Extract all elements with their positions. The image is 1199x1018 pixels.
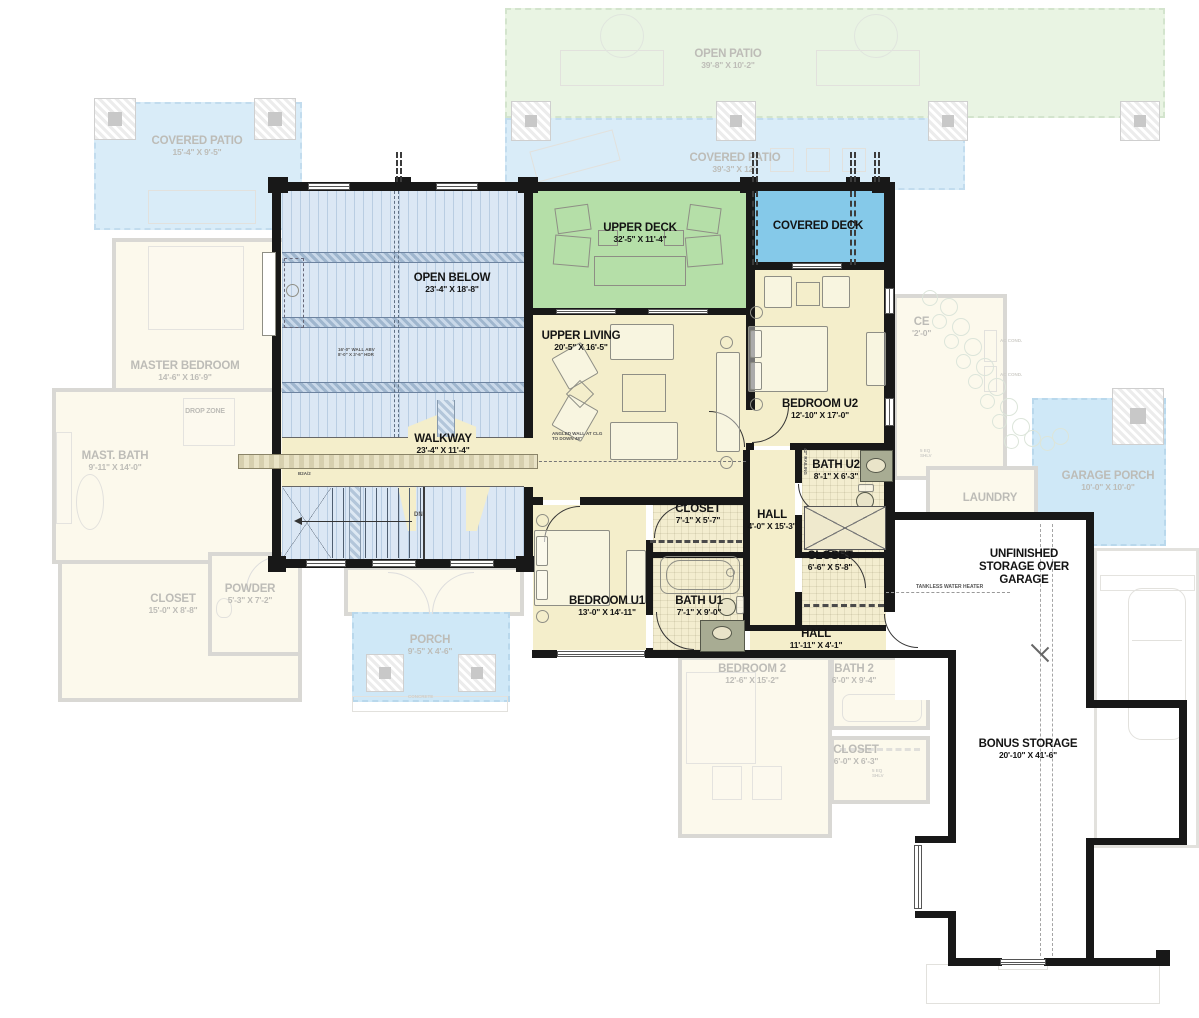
fire-table xyxy=(854,14,898,58)
window xyxy=(436,183,478,190)
open-below-label: OPEN BELOW 23'-4" X 18'-8" xyxy=(414,272,491,294)
faded-furniture xyxy=(712,766,742,800)
shrub xyxy=(976,358,994,376)
wall xyxy=(532,497,543,505)
room-dims: 15'-4" X 9'-5" xyxy=(152,148,243,158)
room-dims: 8'-1" X 6'-3" xyxy=(812,472,860,482)
wall xyxy=(948,655,956,838)
porch-label: PORCH 9'-5" X 4'-6" xyxy=(408,634,452,656)
living-note: ANGLED WALL AT CLG TO DOWN 48" xyxy=(552,431,602,442)
wall xyxy=(646,552,653,615)
sink-fixture xyxy=(712,626,732,640)
faded-outline xyxy=(1132,640,1182,641)
window xyxy=(308,183,350,190)
room-name: POWDER xyxy=(225,583,276,596)
wall xyxy=(646,497,653,505)
room-name: HALL xyxy=(790,628,843,641)
upper-living-label: UPPER LIVING 20'-5" X 16'-5" xyxy=(542,330,621,352)
shrub xyxy=(992,414,1007,429)
shrub xyxy=(1000,398,1018,416)
column xyxy=(942,115,954,127)
upper-deck-label: UPPER DECK 32'-5" X 11'-4" xyxy=(603,222,676,244)
bath-2-label: BATH 2 6'-0" X 9'-4" xyxy=(832,663,876,685)
furniture xyxy=(796,282,820,306)
light-fixture xyxy=(750,398,763,411)
ridge-line xyxy=(394,191,399,437)
walkway-beam xyxy=(238,454,538,469)
room-name: CLOSET xyxy=(807,550,852,563)
room-name: DROP ZONE xyxy=(185,408,225,416)
closet-u1-label: CLOSET 7'-1" X 5'-7" xyxy=(675,503,720,525)
shrub xyxy=(968,374,983,389)
bath-u2-label: BATH U2 8'-1" X 6'-3" xyxy=(812,459,860,481)
room-dims: 39'-3" X 12'- xyxy=(690,165,781,175)
room-name: UPPER DECK xyxy=(603,222,676,235)
room-name: BEDROOM U1 xyxy=(569,595,645,608)
post xyxy=(752,152,758,182)
powder-label: POWDER 5'-3" X 7'-2" xyxy=(225,583,276,605)
faded-outline xyxy=(76,474,104,530)
faded-outline xyxy=(806,148,830,172)
tankless-note: TANKLESS WATER HEATER xyxy=(914,584,985,590)
furniture xyxy=(554,204,591,234)
beam xyxy=(282,317,524,328)
room-name: HALL xyxy=(748,509,797,522)
fire-table xyxy=(600,14,644,58)
furniture xyxy=(685,234,723,267)
shelf-dashes xyxy=(650,540,742,543)
garage-porch-label: GARAGE PORCH 10'-0" X 10'-0" xyxy=(1062,470,1155,492)
room-name: COVERED DECK xyxy=(773,220,863,233)
shrub xyxy=(956,354,971,369)
shrub xyxy=(922,290,938,306)
wall xyxy=(645,650,895,658)
room-name: WALKWAY xyxy=(414,433,472,446)
column xyxy=(1130,408,1146,424)
master-bedroom-label: MASTER BEDROOM 14'-6" X 16'-9" xyxy=(130,360,239,382)
wall xyxy=(795,450,802,483)
shelf-dashes xyxy=(804,604,884,607)
room-floor xyxy=(750,450,795,631)
mast-bath-label: MAST. BATH 9'-11" X 14'-0" xyxy=(82,450,149,472)
room-name: CE xyxy=(912,316,931,329)
wall xyxy=(1179,700,1187,845)
wall xyxy=(948,958,1002,966)
shrub xyxy=(988,378,1006,396)
light-fixture xyxy=(720,336,733,349)
bath-u1-label: BATH U1 7'-1" X 9'-0" xyxy=(675,595,723,617)
walkway-label: WALKWAY 23'-4" X 11'-4" xyxy=(414,433,472,455)
light-fixture xyxy=(750,306,763,319)
shower xyxy=(804,506,886,550)
column xyxy=(1134,115,1146,127)
room-dims: 39'-8" X 10'-2" xyxy=(694,61,761,71)
light-fixture xyxy=(536,610,549,623)
shelf-note-1: 5 EQ SHLV xyxy=(920,448,942,459)
wall xyxy=(423,487,425,559)
window xyxy=(792,263,842,269)
room-name: BATH U1 xyxy=(675,595,723,608)
window xyxy=(372,560,416,567)
room-dims: 12'-6" X 15'-2" xyxy=(718,676,786,686)
wall xyxy=(268,556,286,572)
closet-2-label: CLOSET 6'-0" X 6'-3" xyxy=(833,744,878,766)
room-name: CLOSET xyxy=(833,744,878,757)
room-dims: 7'-1" X 5'-7" xyxy=(675,516,720,526)
stair-arrow xyxy=(302,521,412,523)
faded-outline xyxy=(926,964,1160,1004)
wall xyxy=(1156,950,1170,966)
room-dims: 10'-0" X 10'-0" xyxy=(1062,483,1155,493)
light-fixture xyxy=(720,456,733,469)
window xyxy=(648,309,708,314)
faded-outline xyxy=(1128,588,1186,740)
column xyxy=(108,112,122,126)
wall xyxy=(746,443,754,450)
light-fixture xyxy=(536,514,549,527)
wall xyxy=(1086,700,1187,708)
column xyxy=(379,667,391,679)
furniture xyxy=(610,422,678,460)
wall xyxy=(516,556,534,572)
sink-fixture xyxy=(866,458,886,473)
wall xyxy=(895,650,956,658)
room-dims: 5'-3" X 7'-2" xyxy=(225,596,276,606)
column xyxy=(730,115,742,127)
room-dims: 11'-11" X 4'-1" xyxy=(790,641,843,651)
room-dims: 13'-0" X 14'-11" xyxy=(569,608,645,618)
faded-furniture xyxy=(686,672,756,764)
bedroom-2-label: BEDROOM 2 12'-6" X 15'-2" xyxy=(718,663,786,685)
window xyxy=(450,560,494,567)
hall-lower-label: HALL 11'-11" X 4'-1" xyxy=(790,628,843,650)
room-dims: 9'-5" X 4'-6" xyxy=(408,647,452,657)
room-dims: 15'-0" X 8'-8" xyxy=(149,606,198,616)
drop-zone-label: DROP ZONE xyxy=(185,408,225,416)
room-name: BATH 2 xyxy=(832,663,876,676)
shrub xyxy=(980,394,995,409)
room-name: BEDROOM 2 xyxy=(718,663,786,676)
light-fixture xyxy=(726,568,735,577)
room-name: OPEN BELOW xyxy=(414,272,491,285)
ac-note-2: AC COND. xyxy=(1000,372,1022,377)
room-dims: 20'-10" X 41'-6" xyxy=(979,751,1078,761)
wall xyxy=(580,497,746,505)
open-below-note: 16'-0" WALL ABV 8'-0" X 3'-6" HDR xyxy=(338,347,375,358)
furniture xyxy=(858,484,874,492)
dashed-line xyxy=(534,461,746,462)
covered-patio-left-label: COVERED PATIO 15'-4" X 9'-5" xyxy=(152,135,243,157)
post xyxy=(752,191,758,265)
room-name: UPPER LIVING xyxy=(542,330,621,343)
door-arc xyxy=(884,614,918,648)
post xyxy=(874,152,880,182)
room-name: MASTER BEDROOM xyxy=(130,360,239,373)
covered-patio-rear-label: COVERED PATIO 39'-3" X 12'- xyxy=(690,152,781,174)
wall xyxy=(1086,838,1094,965)
concrete-note: CONCRETE xyxy=(408,694,433,699)
beam xyxy=(282,382,524,393)
room-dims: 9'-11" X 14'-0" xyxy=(82,463,149,473)
wall xyxy=(518,177,538,193)
stairs-dn-note: DN xyxy=(414,512,423,519)
stair-landing xyxy=(283,488,331,558)
window xyxy=(885,398,894,426)
room-dims: 7'-1" X 9'-0" xyxy=(675,608,723,618)
room-name: CLOSET xyxy=(675,503,720,516)
shrub xyxy=(944,334,959,349)
room-dims: 14'-6" X 16'-9" xyxy=(130,373,239,383)
light-fixture xyxy=(286,284,299,297)
open-patio-label: OPEN PATIO 39'-8" X 10'-2" xyxy=(694,48,761,70)
faded-furniture xyxy=(148,246,244,330)
window xyxy=(557,651,645,657)
stair-treads xyxy=(332,488,424,558)
beam xyxy=(282,252,524,263)
room-dims: 20'-5" X 16'-5" xyxy=(542,343,621,353)
room-dims: 6'-6" X 5'-8" xyxy=(807,563,852,573)
wall xyxy=(1094,838,1187,845)
shrub xyxy=(1004,434,1019,449)
floor-plan: OPEN BELOW 23'-4" X 18'-8" UPPER DECK 32… xyxy=(0,0,1199,1018)
furniture xyxy=(822,276,850,308)
furniture xyxy=(750,330,762,358)
wall xyxy=(915,836,956,843)
wall xyxy=(272,182,886,191)
furniture xyxy=(736,596,744,614)
wall xyxy=(532,650,557,658)
furniture xyxy=(536,536,548,566)
unfinished-storage-label: UNFINISHED STORAGE OVER GARAGE xyxy=(974,548,1074,587)
faded-outline xyxy=(148,190,256,224)
room-name: BONUS STORAGE xyxy=(979,738,1078,751)
room-dims: '2'-0" xyxy=(912,329,931,339)
wall xyxy=(1044,958,1166,966)
shrub xyxy=(1052,428,1069,445)
laundry-label: LAUNDRY xyxy=(963,492,1017,505)
hall-upper-label: HALL 4'-0" X 15'-3" xyxy=(748,509,797,531)
furniture xyxy=(262,252,276,336)
room-dims: 23'-4" X 18'-8" xyxy=(414,285,491,295)
window xyxy=(914,845,922,909)
faded-furniture xyxy=(183,398,235,446)
window xyxy=(885,288,894,314)
bedroom-u1-label: BEDROOM U1 13'-0" X 14'-11" xyxy=(569,595,645,617)
room-name: CLOSET xyxy=(149,593,198,606)
furniture xyxy=(764,276,792,308)
furniture xyxy=(750,362,762,390)
wall xyxy=(884,512,1094,520)
furniture xyxy=(686,204,721,234)
furniture xyxy=(666,560,734,590)
wall xyxy=(915,911,956,918)
room-name: LAUNDRY xyxy=(963,492,1017,505)
room-dims: 4'-0" X 15'-3" xyxy=(748,522,797,532)
wall xyxy=(948,918,956,966)
faded-furniture xyxy=(752,766,782,800)
dashed-line xyxy=(886,592,1010,593)
wall xyxy=(268,177,288,193)
furniture xyxy=(594,256,686,286)
window xyxy=(1000,959,1046,965)
furniture xyxy=(866,332,886,386)
shrub xyxy=(940,298,958,316)
faded-furniture xyxy=(56,432,72,524)
room-name: MAST. BATH xyxy=(82,450,149,463)
window xyxy=(306,560,346,567)
room-name: OPEN PATIO xyxy=(694,48,761,61)
beam-note: B2A/2 xyxy=(298,471,311,476)
shrub xyxy=(1024,430,1041,447)
room-dims: 6'-0" X 9'-4" xyxy=(832,676,876,686)
stair-arrowhead xyxy=(294,517,302,525)
hatch-strip xyxy=(349,487,361,559)
room-floor xyxy=(956,658,1086,958)
furniture xyxy=(716,352,740,452)
column xyxy=(268,112,282,126)
window xyxy=(556,309,616,314)
master-closet-label: CLOSET 15'-0" X 8'-8" xyxy=(149,593,198,615)
wall xyxy=(743,450,750,631)
room-name: COVERED PATIO xyxy=(690,152,781,165)
room-dims: 32'-5" X 11'-4" xyxy=(603,235,676,245)
room-dims: 6'-0" X 6'-3" xyxy=(833,757,878,767)
room-name: COVERED PATIO xyxy=(152,135,243,148)
ac-note-1: AC COND. xyxy=(1000,338,1022,343)
column xyxy=(525,115,537,127)
wall xyxy=(272,182,281,568)
room-name: GARAGE PORCH xyxy=(1062,470,1155,483)
room-name: UNFINISHED STORAGE OVER GARAGE xyxy=(974,548,1074,587)
shelf-note-2: 5 EQ SHLV xyxy=(872,768,894,779)
bonus-storage-label: BONUS STORAGE 20'-10" X 41'-6" xyxy=(979,738,1078,760)
room-dims: 23'-4" X 11'-4" xyxy=(414,446,472,456)
closet-u2-label: CLOSET 6'-6" X 5'-8" xyxy=(807,550,852,572)
furniture xyxy=(622,374,666,412)
hatch-strip xyxy=(437,400,455,437)
furniture xyxy=(553,234,591,267)
wall xyxy=(1086,512,1094,708)
bedroom-u2-label: BEDROOM U2 12'-10" X 17'-0" xyxy=(782,398,858,420)
column xyxy=(471,667,483,679)
room-name: BATH U2 xyxy=(812,459,860,472)
rail-note: 42" RAILING xyxy=(803,448,808,475)
shrub xyxy=(932,314,947,329)
furniture xyxy=(536,570,548,600)
open-below-hatch xyxy=(282,191,524,437)
shrub xyxy=(952,318,970,336)
room-name: PORCH xyxy=(408,634,452,647)
room-name: BEDROOM U2 xyxy=(782,398,858,411)
shrub xyxy=(964,338,982,356)
post xyxy=(850,152,856,182)
room-dims: 12'-10" X 17'-0" xyxy=(782,411,858,421)
office-partial-label: CE '2'-0" xyxy=(912,316,931,338)
post xyxy=(396,152,402,182)
covered-deck-label: COVERED DECK xyxy=(773,220,863,233)
